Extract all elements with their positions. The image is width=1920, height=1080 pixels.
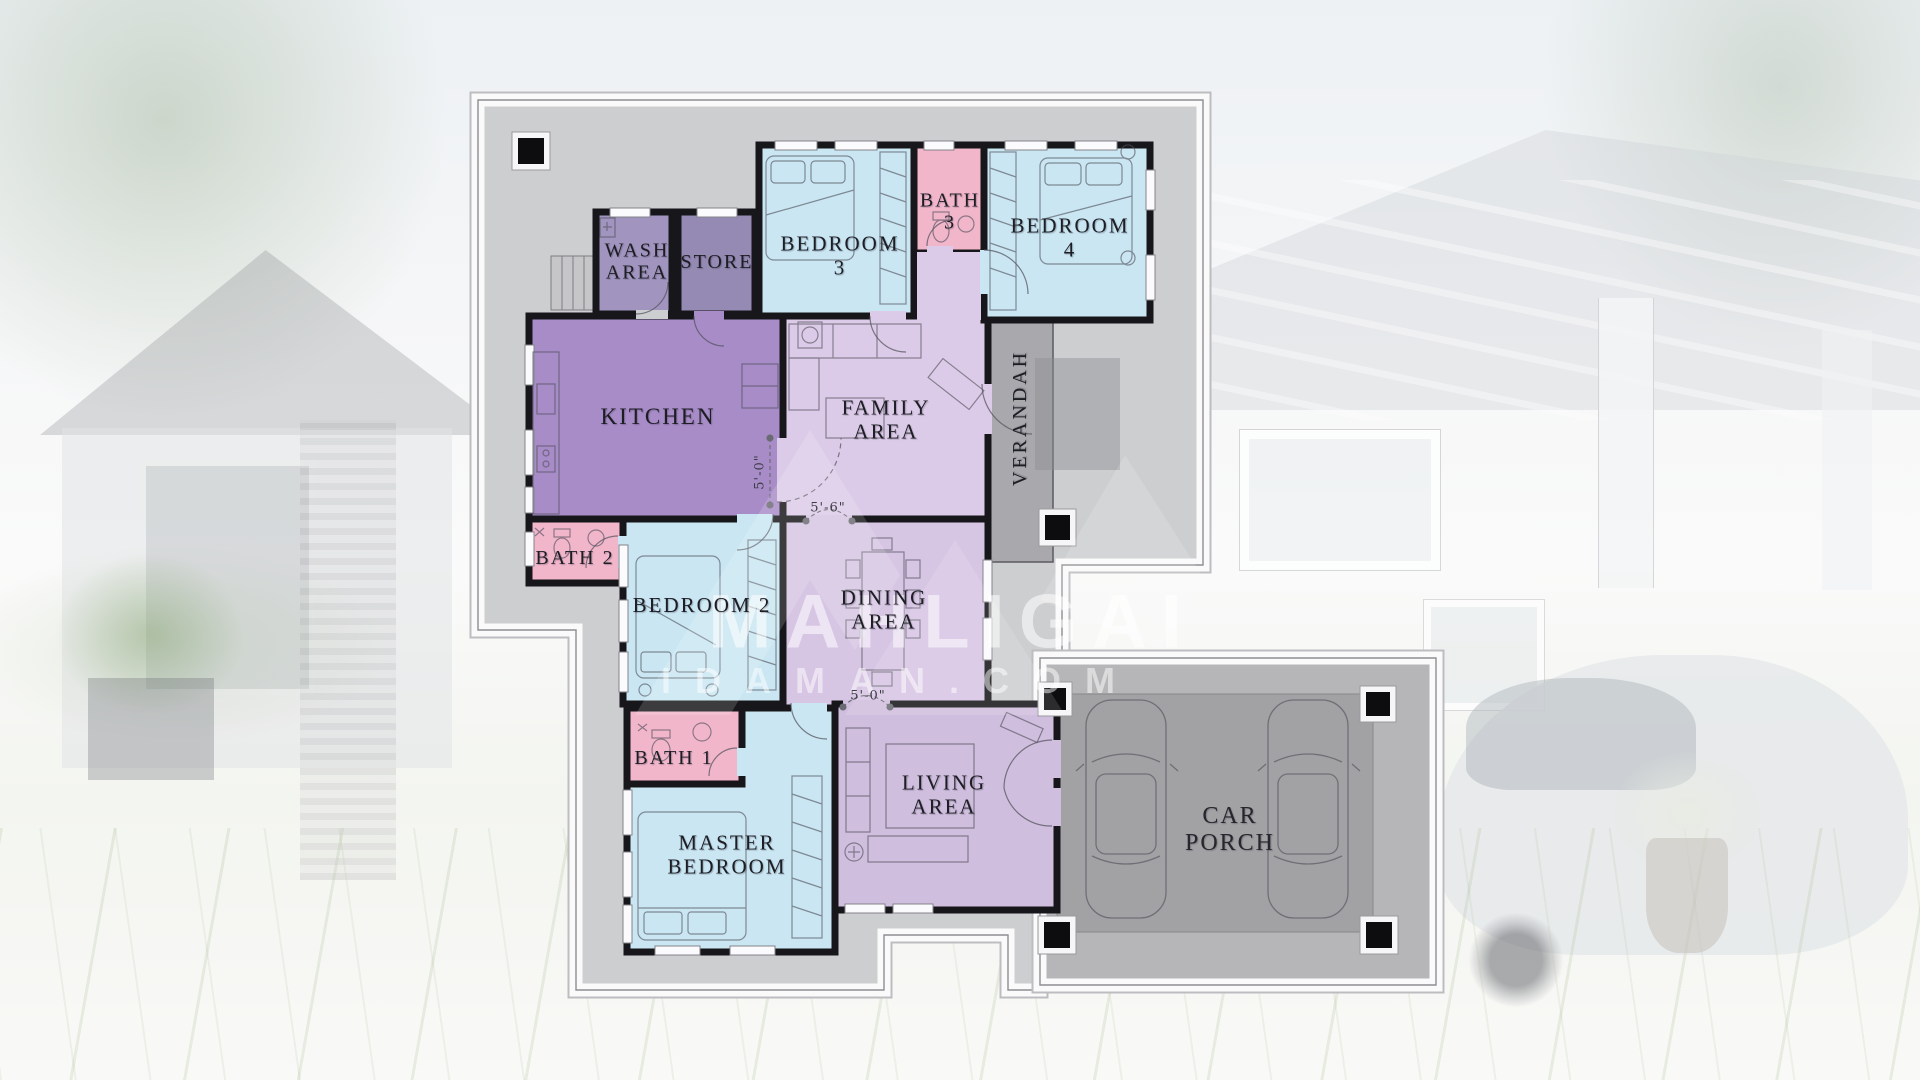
floor-plan-screenshot: MAHLIGAI IDAMAN.COM WASHAREA STORE BEDRO…	[0, 0, 1920, 1080]
dimension-kitchen-passage: 5'-0"	[753, 454, 768, 490]
label-family-area: FAMILYAREA	[842, 396, 931, 443]
verandah-shadow	[1035, 358, 1120, 470]
corridor	[917, 252, 981, 320]
label-bath-3: BATH3	[920, 190, 980, 235]
dimension-dining-living: 5'-0"	[850, 689, 886, 704]
label-living-area: LIVINGAREA	[902, 771, 986, 818]
label-bath-1: BATH 1	[634, 747, 713, 769]
outdoor-steps	[551, 256, 595, 310]
label-dining-area: DININGAREA	[841, 586, 928, 633]
label-bedroom-2: BEDROOM 2	[633, 594, 772, 618]
dimension-family-dining: 5'-6"	[810, 501, 846, 516]
label-verandah: VERANDAH	[1009, 350, 1031, 486]
label-car-porch: CARPORCH	[1185, 803, 1275, 857]
label-bedroom-4: BEDROOM4	[1010, 214, 1129, 261]
label-bedroom-3: BEDROOM3	[780, 232, 899, 279]
floor-plan-drawing	[0, 0, 1920, 1080]
label-master-bedroom: MASTERBEDROOM	[667, 831, 786, 878]
label-kitchen: KITCHEN	[601, 404, 716, 430]
label-wash-area: WASHAREA	[605, 240, 670, 285]
label-bath-2: BATH 2	[535, 547, 614, 569]
label-store: STORE	[681, 251, 754, 273]
